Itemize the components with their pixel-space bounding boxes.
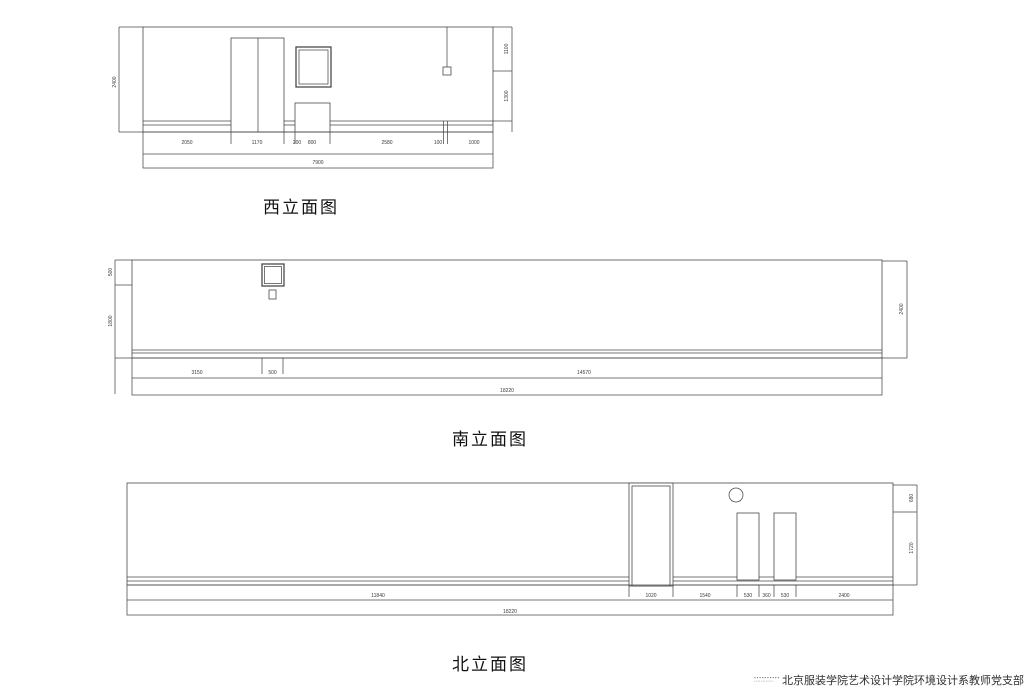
west-window bbox=[296, 47, 331, 87]
south-window bbox=[262, 264, 284, 286]
south-dim-right-height: 2400 bbox=[899, 303, 905, 314]
south-vent bbox=[269, 290, 276, 299]
west-door-outline bbox=[231, 38, 284, 132]
west-elevation-drawing: 2400 1100 1300 2050 1170 200 800 2580 10… bbox=[108, 14, 520, 210]
dim-label: 1540 bbox=[699, 593, 710, 599]
west-dim-left-lines bbox=[119, 27, 143, 132]
dim-label: 360 bbox=[762, 593, 771, 599]
dim-label: 1020 bbox=[645, 593, 656, 599]
south-elevation-title: 南立面图 bbox=[430, 425, 550, 450]
west-window-outer bbox=[296, 47, 331, 87]
south-dim-left-lines bbox=[115, 260, 132, 394]
dim-label: 100 bbox=[434, 140, 443, 146]
south-dim-strip: 3150 500 14570 18220 bbox=[132, 358, 882, 395]
dim-label: 200 bbox=[293, 140, 302, 146]
footer-credit-text: 北京服装学院艺术设计学院环境设计系教师党支部 bbox=[782, 672, 1024, 688]
north-dim-strip: 11840 1020 1540 530 360 530 2400 18220 bbox=[127, 585, 893, 615]
west-dim-right-lower: 1300 bbox=[504, 90, 510, 101]
north-dim-total: 18220 bbox=[503, 609, 517, 615]
west-cabinet bbox=[295, 103, 330, 132]
north-pillar-right bbox=[774, 513, 796, 580]
west-double-door bbox=[231, 38, 284, 132]
dim-label: 14570 bbox=[577, 370, 591, 376]
dim-label: 2580 bbox=[381, 140, 392, 146]
south-elevation-drawing: 500 1800 2400 3150 500 14570 18220 bbox=[103, 248, 915, 400]
south-dim-left-upper: 500 bbox=[108, 268, 114, 277]
north-door bbox=[629, 483, 673, 586]
drawing-sheet: 2400 1100 1300 2050 1170 200 800 2580 10… bbox=[0, 0, 1024, 689]
dim-label: 1000 bbox=[468, 140, 479, 146]
west-elevation-title: 西立面图 bbox=[241, 193, 361, 218]
dim-label: 11840 bbox=[371, 593, 385, 599]
west-dim-strip: 2050 1170 200 800 2580 100 1000 7900 bbox=[143, 132, 493, 168]
watermark-line2: ▪▪▪▪▪▪▪▪▪▪▪▪ bbox=[754, 680, 774, 683]
west-dim-right-lines bbox=[493, 27, 512, 132]
dim-label: 530 bbox=[781, 593, 790, 599]
dim-label: 2050 bbox=[181, 140, 192, 146]
south-dim-total: 18220 bbox=[500, 388, 514, 394]
north-pillar-left bbox=[737, 513, 759, 580]
dim-label: 3150 bbox=[191, 370, 202, 376]
watermark-stamp: ▪▪▪▪▪▪▪▪▪▪ ▪▪▪▪▪▪▪▪▪▪▪▪ bbox=[754, 676, 780, 684]
north-elevation-title: 北立面图 bbox=[430, 650, 550, 675]
west-dim-right-upper: 1100 bbox=[504, 43, 510, 54]
west-dim-total: 7900 bbox=[312, 160, 323, 166]
west-dim-bracket-left: 2400 bbox=[112, 27, 143, 132]
south-dim-bracket-left: 500 1800 bbox=[108, 260, 132, 394]
dim-label: 530 bbox=[744, 593, 753, 599]
south-wall-outline bbox=[132, 260, 882, 358]
west-dim-left-height: 2400 bbox=[112, 76, 118, 87]
north-door-inner bbox=[632, 486, 670, 586]
north-dim-bracket-right: 680 1720 bbox=[893, 485, 917, 585]
west-dim-bracket-right: 1100 1300 bbox=[493, 27, 512, 132]
south-dim-bracket-right: 2400 bbox=[882, 261, 907, 358]
south-dim-left-lower: 1800 bbox=[108, 315, 114, 326]
north-dim-right-upper: 680 bbox=[909, 494, 915, 503]
footer: ▪▪▪▪▪▪▪▪▪▪ ▪▪▪▪▪▪▪▪▪▪▪▪ 北京服装学院艺术设计学院环境设计… bbox=[733, 671, 1024, 688]
dim-label: 2400 bbox=[838, 593, 849, 599]
south-window-outer bbox=[262, 264, 284, 286]
north-elevation-drawing: 680 1720 11840 1020 1540 530 360 530 240… bbox=[118, 473, 926, 621]
dim-label: 1170 bbox=[252, 140, 263, 146]
north-dim-right-lower: 1720 bbox=[909, 542, 915, 553]
dim-label: 800 bbox=[308, 140, 317, 146]
dim-label: 500 bbox=[268, 370, 277, 376]
west-pendant-lamp bbox=[443, 67, 451, 75]
